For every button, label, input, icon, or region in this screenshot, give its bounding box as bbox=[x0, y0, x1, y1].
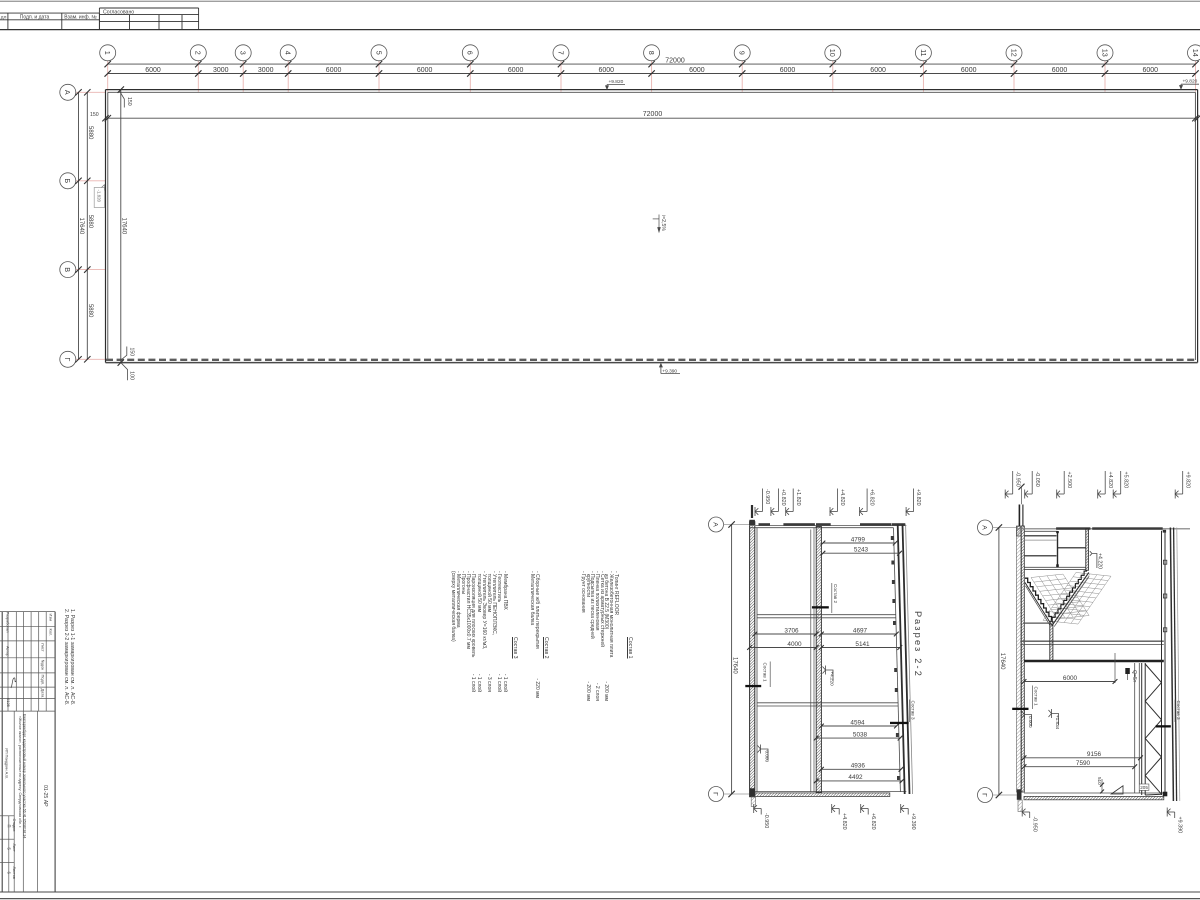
svg-text:4936: 4936 bbox=[851, 763, 866, 770]
svg-text:6000: 6000 bbox=[599, 67, 615, 74]
svg-text:-0.950: -0.950 bbox=[1014, 472, 1020, 487]
svg-text:Г: Г bbox=[63, 357, 72, 361]
svg-text:3706: 3706 bbox=[784, 627, 799, 634]
svg-text:150: 150 bbox=[90, 112, 99, 118]
svg-text:А: А bbox=[63, 90, 72, 95]
svg-text:6000: 6000 bbox=[689, 67, 705, 74]
svg-text:+1.820: +1.820 bbox=[795, 489, 801, 506]
svg-text:Состав 3: Состав 3 bbox=[1176, 701, 1181, 720]
svg-text:Дата: Дата bbox=[41, 689, 46, 699]
svg-text:150: 150 bbox=[126, 97, 132, 106]
svg-text:Состав 1: Состав 1 bbox=[763, 663, 768, 682]
svg-text:3000: 3000 bbox=[258, 67, 274, 74]
svg-text:5880: 5880 bbox=[87, 215, 93, 229]
svg-text:4492: 4492 bbox=[848, 774, 863, 781]
svg-text:17640: 17640 bbox=[78, 218, 84, 235]
svg-text:Состав 1: Состав 1 bbox=[1034, 687, 1039, 706]
svg-text:13: 13 bbox=[1100, 49, 1109, 57]
svg-text:0.000: 0.000 bbox=[1028, 716, 1033, 728]
svg-text:В: В bbox=[63, 267, 72, 272]
svg-text:Подп. и дата: Подп. и дата bbox=[20, 14, 50, 20]
svg-text:4000: 4000 bbox=[787, 641, 802, 648]
svg-text:3000: 3000 bbox=[213, 67, 229, 74]
svg-text:Подп.: Подп. bbox=[41, 675, 46, 686]
svg-text:+4.820: +4.820 bbox=[839, 489, 845, 506]
svg-text:Лист: Лист bbox=[41, 643, 46, 652]
svg-text:+9.820: +9.820 bbox=[1184, 472, 1190, 489]
svg-text:+2.500: +2.500 bbox=[1066, 472, 1072, 489]
svg-text:Г: Г bbox=[712, 792, 719, 796]
svg-text:17640: 17640 bbox=[121, 218, 127, 235]
svg-text:+4.220: +4.220 bbox=[1096, 553, 1102, 569]
svg-text:5038: 5038 bbox=[853, 731, 868, 738]
svg-text:Взам. инф. №: Взам. инф. № bbox=[64, 14, 96, 20]
svg-text:11: 11 bbox=[919, 49, 928, 56]
svg-text:«Жилое окало», расположенные п: «Жилое окало», расположенные по адресу: … bbox=[18, 716, 22, 828]
svg-text:дл: дл bbox=[1, 15, 7, 20]
svg-text:Q=5т: Q=5т bbox=[1131, 670, 1137, 683]
svg-text:6000: 6000 bbox=[961, 67, 977, 74]
svg-text:Б: Б bbox=[63, 178, 72, 183]
svg-text:4697: 4697 bbox=[853, 627, 868, 634]
svg-text:510: 510 bbox=[1097, 777, 1102, 785]
svg-text:2: 2 bbox=[194, 51, 203, 55]
svg-text:17640: 17640 bbox=[999, 653, 1005, 670]
svg-text:9: 9 bbox=[738, 51, 747, 55]
svg-text:1: 1 bbox=[103, 51, 112, 55]
svg-text:+6.820: +6.820 bbox=[869, 489, 875, 506]
svg-text:17640: 17640 bbox=[732, 657, 738, 674]
svg-text:А: А bbox=[712, 522, 719, 527]
svg-text:6000: 6000 bbox=[1142, 67, 1158, 74]
svg-text:150: 150 bbox=[128, 348, 134, 357]
svg-text:+0.820: +0.820 bbox=[780, 489, 786, 506]
svg-text:№док: №док bbox=[41, 660, 46, 671]
svg-text:6000: 6000 bbox=[870, 67, 886, 74]
svg-text:0.000: 0.000 bbox=[764, 751, 769, 763]
svg-text:i=2,5%: i=2,5% bbox=[660, 215, 666, 231]
svg-text:72000: 72000 bbox=[643, 111, 663, 118]
svg-text:-0.050: -0.050 bbox=[1034, 472, 1040, 487]
svg-text:72000: 72000 bbox=[665, 58, 685, 65]
svg-text:205: 205 bbox=[1140, 785, 1148, 790]
svg-text:Г: Г bbox=[981, 793, 988, 797]
svg-text:4799: 4799 bbox=[851, 536, 866, 543]
svg-text:Состав 3: Состав 3 bbox=[911, 701, 916, 720]
svg-text:5141: 5141 bbox=[855, 641, 870, 648]
svg-text:+9.390: +9.390 bbox=[910, 813, 916, 830]
svg-text:5880: 5880 bbox=[87, 304, 93, 318]
svg-text:5: 5 bbox=[374, 51, 383, 55]
svg-text:9156: 9156 bbox=[1087, 751, 1102, 758]
svg-text:10: 10 bbox=[828, 49, 837, 57]
svg-text:8: 8 bbox=[647, 51, 656, 55]
svg-text:5243: 5243 bbox=[854, 547, 869, 554]
svg-text:+9.820: +9.820 bbox=[915, 489, 921, 506]
svg-text:01-25 АР: 01-25 АР bbox=[42, 785, 48, 807]
svg-text:12: 12 bbox=[1009, 49, 1018, 57]
svg-text:-1.820: -1.820 bbox=[97, 190, 102, 203]
svg-text:7590: 7590 bbox=[1076, 760, 1091, 767]
svg-text:+4.220: +4.220 bbox=[829, 672, 834, 687]
svg-text:Изм: Изм bbox=[49, 614, 54, 622]
svg-text:Кол.: Кол. bbox=[49, 629, 54, 637]
svg-text:14: 14 bbox=[1191, 49, 1200, 57]
svg-text:+6.820: +6.820 bbox=[870, 813, 876, 830]
svg-text:6: 6 bbox=[466, 51, 475, 55]
svg-text:5880: 5880 bbox=[87, 126, 93, 140]
svg-text:+5.820: +5.820 bbox=[1122, 472, 1128, 489]
svg-text:Разработал: Разработал bbox=[6, 612, 10, 633]
svg-text:П: П bbox=[7, 825, 12, 828]
svg-text:6000: 6000 bbox=[1063, 675, 1078, 682]
svg-text:+4.820: +4.820 bbox=[1107, 472, 1113, 489]
svg-text:+4.820: +4.820 bbox=[841, 813, 847, 830]
svg-text:+1.834: +1.834 bbox=[1055, 715, 1060, 730]
svg-text:Согласовано: Согласовано bbox=[103, 10, 134, 16]
svg-text:7: 7 bbox=[556, 51, 565, 55]
svg-text:6000: 6000 bbox=[417, 67, 433, 74]
svg-text:6000: 6000 bbox=[145, 67, 161, 74]
svg-text:6000: 6000 bbox=[780, 67, 796, 74]
svg-text:Разрез 2-2: Разрез 2-2 bbox=[913, 611, 923, 678]
svg-text:+9.390: +9.390 bbox=[1176, 817, 1182, 834]
svg-text:+9.390: +9.390 bbox=[662, 368, 677, 374]
svg-text:+9.820: +9.820 bbox=[1183, 79, 1198, 85]
svg-text:-0.950: -0.950 bbox=[763, 813, 769, 828]
svg-text:0125: 0125 bbox=[6, 698, 11, 708]
svg-text:100: 100 bbox=[129, 371, 135, 380]
svg-text:ИП Пандрин А.В.: ИП Пандрин А.В. bbox=[5, 748, 10, 779]
svg-text:Екатеринбург, кадастровый номе: Екатеринбург, кадастровый номер земельно… bbox=[23, 714, 27, 838]
svg-text:6000: 6000 bbox=[508, 67, 524, 74]
svg-text:А: А bbox=[981, 525, 988, 530]
svg-text:-0.950: -0.950 bbox=[1031, 817, 1037, 832]
svg-text:-0.950: -0.950 bbox=[764, 489, 770, 504]
svg-text:3: 3 bbox=[239, 51, 248, 55]
svg-text:Состав 2: Состав 2 bbox=[833, 584, 838, 603]
svg-text:4594: 4594 bbox=[850, 719, 865, 726]
svg-text:6000: 6000 bbox=[1052, 67, 1068, 74]
svg-text:6000: 6000 bbox=[326, 67, 342, 74]
svg-text:+9.820: +9.820 bbox=[609, 79, 624, 85]
svg-text:4: 4 bbox=[284, 51, 293, 55]
svg-text:Автор: Автор bbox=[6, 646, 10, 656]
